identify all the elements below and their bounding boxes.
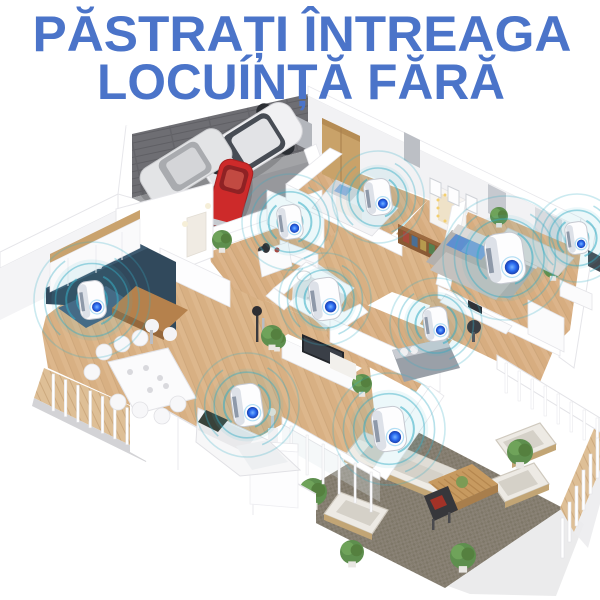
svg-text:LOCUÍNȚĂ FĂRĂ: LOCUÍNȚĂ FĂRĂ [97,54,505,110]
